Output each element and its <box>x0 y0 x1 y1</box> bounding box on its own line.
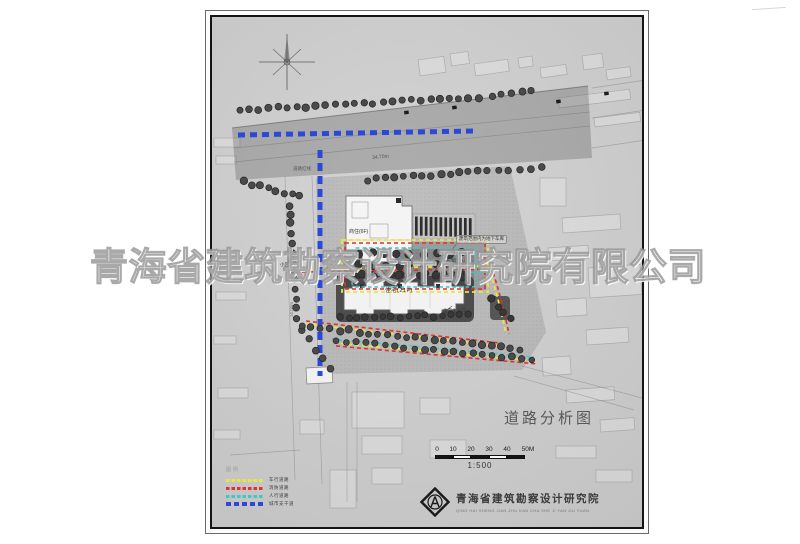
corner-smudge <box>752 7 786 16</box>
legend-swatch-yellow <box>226 479 264 482</box>
scale-tick: 0 <box>435 446 439 453</box>
scale-ratio: 1:500 <box>467 461 492 470</box>
publisher-pinyin: QING HAI SHENG JIAN ZHU KAN CHA SHE JI Y… <box>456 508 600 513</box>
label-residence-entry: 住宅主入口 <box>443 309 466 314</box>
legend: 图例 车行道路 消防道路 人行道路 城市支干道 <box>226 466 294 508</box>
label-garage-note: 建筑范围内为地下车库 <box>456 235 507 244</box>
legend-label: 人行道路 <box>269 493 289 499</box>
publisher-name: 青海省建筑勘察设计研究院 <box>456 491 600 506</box>
site-plan-drawing <box>212 17 642 527</box>
label-community-entry: 小区入口 <box>280 263 298 268</box>
scale-bar-segments <box>435 455 525 459</box>
publisher-block: 青海省建筑勘察设计研究院 QING HAI SHENG JIAN ZHU KAN… <box>420 487 600 517</box>
plan-area: 道路红线 34.70m 36.50m 16.00m 商住(6F) 住宅(21F)… <box>210 15 644 529</box>
page-title: 道路分析图 <box>504 407 594 428</box>
label-dim-16: 16.00m <box>290 302 295 317</box>
scale-bar: 0 10 20 30 40 50M 1:500 <box>435 446 541 474</box>
legend-label: 车行道路 <box>269 477 289 483</box>
scale-tick: 40 <box>503 446 510 453</box>
legend-swatch-red <box>226 487 264 490</box>
legend-swatch-blue <box>226 502 264 506</box>
institute-seal-icon <box>420 487 450 517</box>
legend-label: 消防道路 <box>269 485 289 491</box>
scale-tick: 30 <box>485 446 492 453</box>
legend-swatch-cyan <box>226 495 264 498</box>
legend-item-fire: 消防道路 <box>226 484 294 492</box>
scale-tick: 50M <box>522 446 535 453</box>
label-building-shop: 商住(6F) <box>349 230 368 235</box>
legend-item-vehicular: 车行道路 <box>226 476 294 484</box>
scale-tick: 10 <box>449 446 456 453</box>
label-garage-entry: 车库出入口 <box>446 259 469 264</box>
north-arrow-icon <box>259 34 315 90</box>
scale-tick: 20 <box>467 446 474 453</box>
label-road-redline: 道路红线 <box>293 167 311 172</box>
label-building-residence: 住宅(21F) <box>385 289 413 295</box>
legend-item-pedestrian: 人行道路 <box>226 492 294 500</box>
legend-item-city-road: 城市支干道 <box>226 500 294 508</box>
legend-label: 城市支干道 <box>269 501 294 507</box>
legend-header: 图例 <box>226 466 294 473</box>
drawing-canvas: 道路红线 34.70m 36.50m 16.00m 商住(6F) 住宅(21F)… <box>0 0 800 544</box>
drawing-sheet: 道路红线 34.70m 36.50m 16.00m 商住(6F) 住宅(21F)… <box>205 10 649 534</box>
